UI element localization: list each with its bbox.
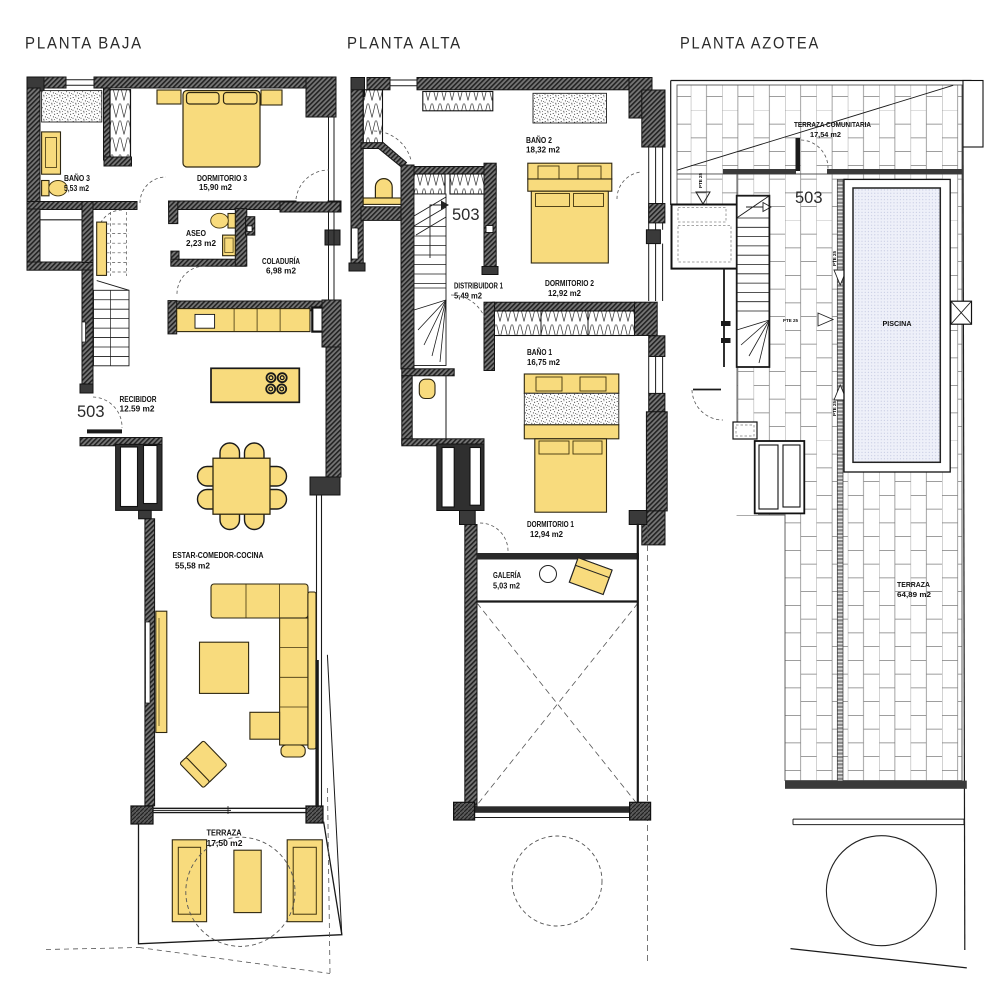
svg-text:DORMITORIO 2: DORMITORIO 2 [545,279,594,288]
svg-text:6,98 m2: 6,98 m2 [266,267,297,276]
svg-text:12,92 m2: 12,92 m2 [548,289,582,298]
svg-text:PLANTA BAJA: PLANTA BAJA [25,35,143,53]
svg-text:PISCINA: PISCINA [883,319,913,328]
svg-text:GALERÍA: GALERÍA [493,571,521,580]
svg-text:64,89 m2: 64,89 m2 [897,590,931,599]
svg-text:18,32 m2: 18,32 m2 [526,146,561,155]
svg-text:DORMITORIO 1: DORMITORIO 1 [527,520,574,529]
svg-text:5,03 m2: 5,03 m2 [493,582,521,591]
svg-text:15,90 m2: 15,90 m2 [199,183,233,192]
svg-text:PTE 25: PTE 25 [783,318,799,323]
svg-text:503: 503 [77,403,105,421]
svg-text:TERRAZA: TERRAZA [207,829,242,838]
svg-text:PTE 25: PTE 25 [832,400,837,416]
svg-text:RECIBIDOR: RECIBIDOR [120,395,157,404]
svg-text:ASEO: ASEO [186,229,206,238]
svg-text:17,50 m2: 17,50 m2 [207,839,244,848]
svg-text:PTE 25: PTE 25 [698,172,703,188]
svg-text:12.59 m2: 12.59 m2 [120,405,156,414]
svg-text:COLADURÍA: COLADURÍA [262,257,300,266]
svg-text:503: 503 [795,189,823,207]
svg-text:17,54 m2: 17,54 m2 [810,130,841,139]
svg-text:TERRAZA: TERRAZA [897,580,931,589]
svg-text:55,58 m2: 55,58 m2 [175,562,211,571]
svg-text:12,94 m2: 12,94 m2 [530,530,564,539]
svg-text:PLANTA ALTA: PLANTA ALTA [347,35,462,53]
svg-text:PTE 25: PTE 25 [832,250,837,266]
svg-text:TERRAZA COMUNITARIA: TERRAZA COMUNITARIA [794,120,871,129]
svg-text:BAÑO 2: BAÑO 2 [526,136,552,145]
svg-text:BAÑO 3: BAÑO 3 [64,174,90,183]
svg-text:16,75 m2: 16,75 m2 [527,358,561,367]
svg-text:5,53 m2: 5,53 m2 [64,184,89,193]
svg-text:DORMITORIO 3: DORMITORIO 3 [197,174,247,183]
svg-text:ESTAR-COMEDOR-COCINA: ESTAR-COMEDOR-COCINA [173,551,264,560]
svg-text:PLANTA AZOTEA: PLANTA AZOTEA [680,35,820,53]
svg-text:2,23 m2: 2,23 m2 [186,239,217,248]
svg-text:DISTRIBUIDOR 1: DISTRIBUIDOR 1 [454,282,503,291]
svg-text:BAÑO 1: BAÑO 1 [527,348,552,357]
svg-text:503: 503 [452,206,480,224]
